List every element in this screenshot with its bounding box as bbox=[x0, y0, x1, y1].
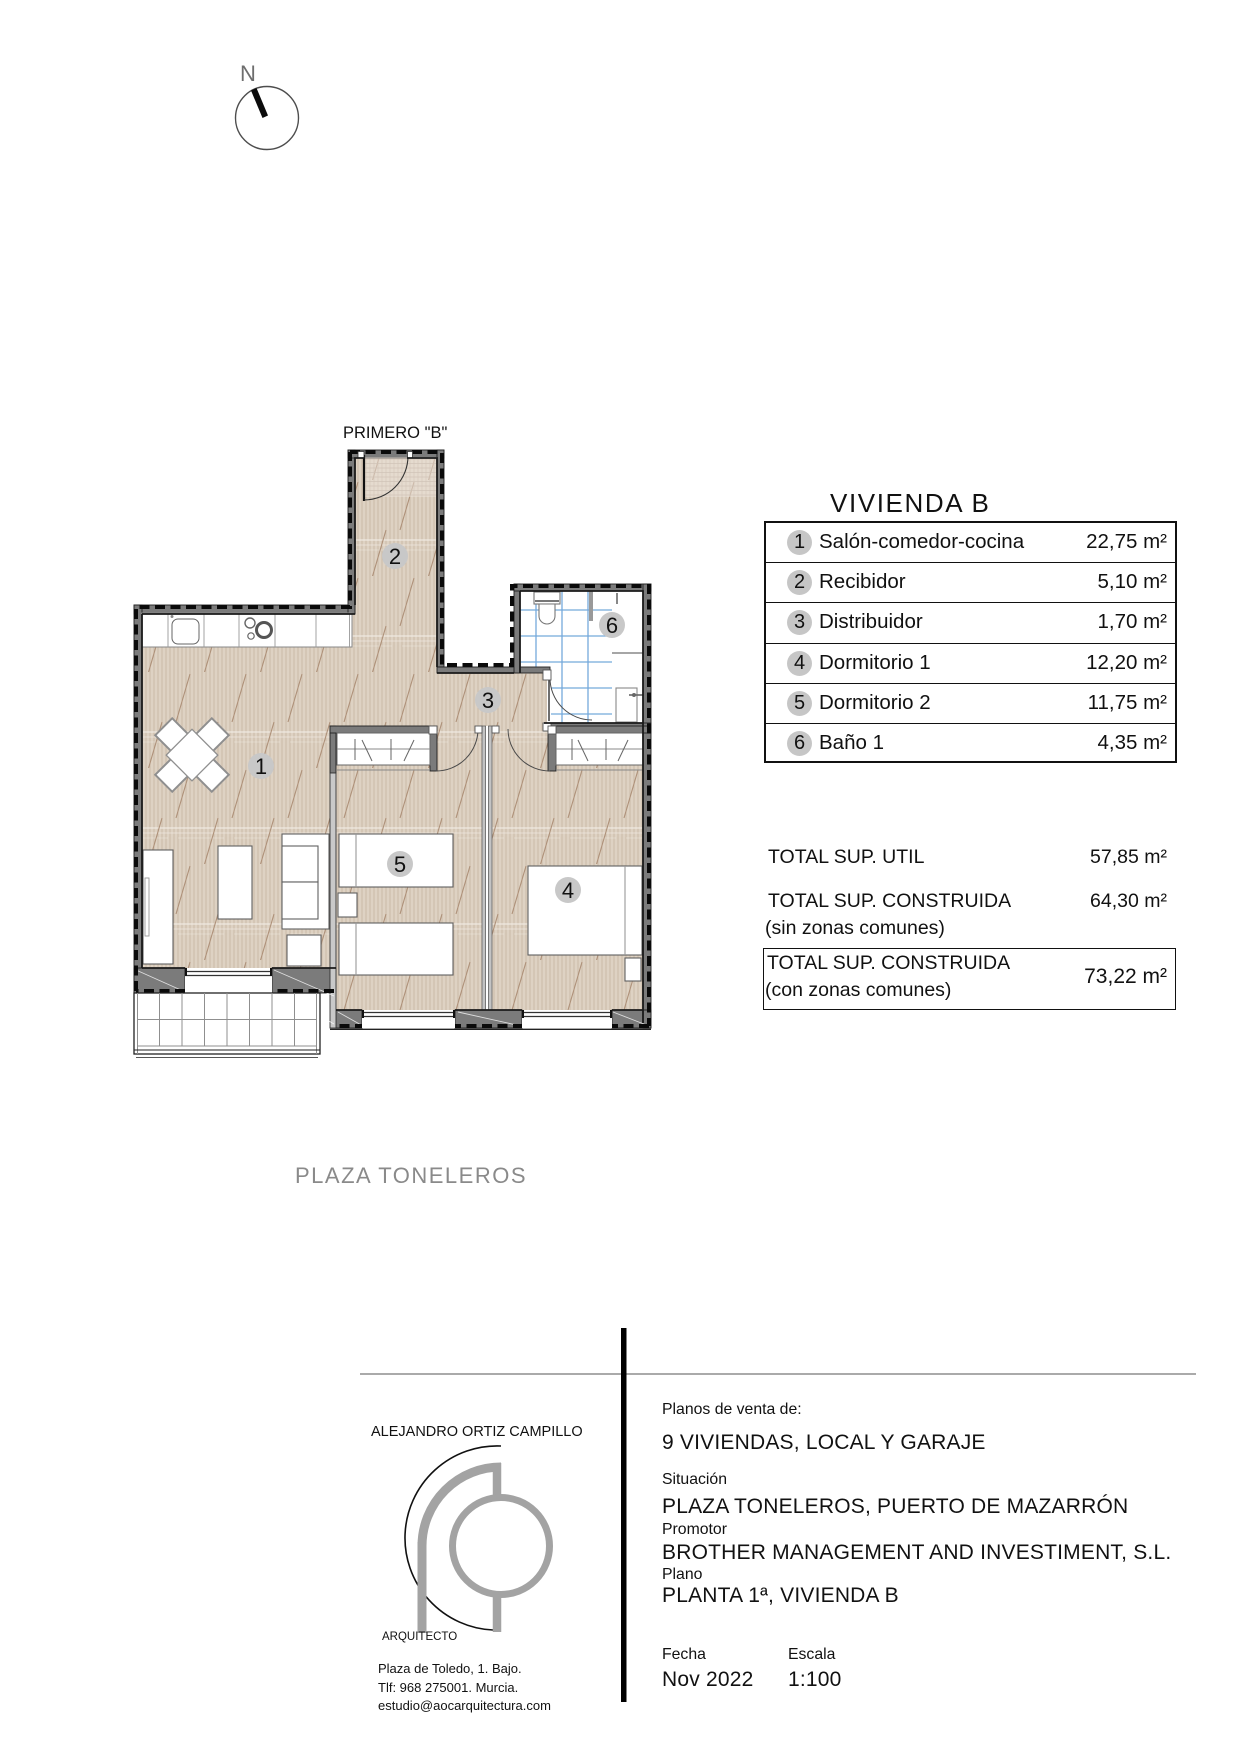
svg-text:2: 2 bbox=[389, 544, 401, 569]
svg-text:1: 1 bbox=[255, 754, 267, 779]
svg-text:5: 5 bbox=[394, 852, 406, 877]
svg-text:N: N bbox=[240, 61, 256, 86]
svg-text:PRIMERO "B": PRIMERO "B" bbox=[343, 424, 447, 442]
svg-text:6: 6 bbox=[606, 613, 618, 638]
svg-text:4: 4 bbox=[562, 878, 574, 903]
svg-text:3: 3 bbox=[482, 688, 494, 713]
